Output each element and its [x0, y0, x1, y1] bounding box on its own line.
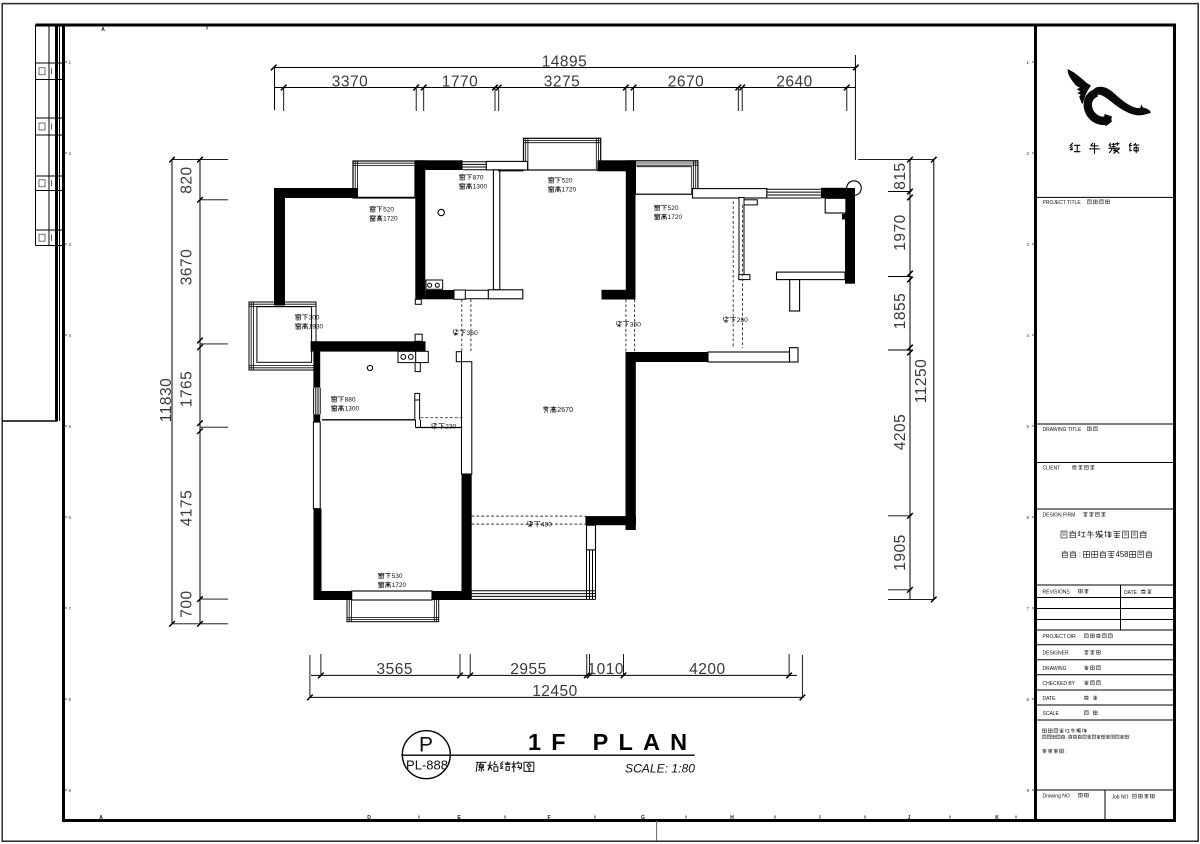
svg-text:PROJECT DIR: PROJECT DIR — [1043, 634, 1077, 640]
svg-text:230: 230 — [445, 424, 456, 431]
svg-text:A: A — [99, 815, 103, 821]
svg-text:REVISIONS: REVISIONS — [1043, 589, 1071, 595]
svg-text:H: H — [730, 815, 734, 821]
svg-text:520: 520 — [562, 178, 573, 185]
svg-text:4205: 4205 — [892, 414, 909, 450]
svg-text:1905: 1905 — [892, 534, 909, 570]
svg-text:K: K — [995, 815, 999, 821]
svg-text:4175: 4175 — [179, 490, 196, 526]
svg-text:3275: 3275 — [544, 74, 580, 91]
svg-text:360: 360 — [467, 330, 478, 337]
svg-text:2670: 2670 — [557, 406, 573, 414]
svg-text:SCALE: 1:80: SCALE: 1:80 — [625, 761, 695, 775]
svg-text:1720: 1720 — [392, 582, 407, 589]
svg-text:DESIGN FIRM: DESIGN FIRM — [1043, 513, 1076, 519]
svg-text:458: 458 — [1116, 550, 1129, 559]
svg-text:1300: 1300 — [345, 406, 360, 413]
svg-text:1720: 1720 — [562, 187, 577, 194]
svg-text:Drawing NO: Drawing NO — [1043, 793, 1070, 799]
svg-text:1770: 1770 — [442, 74, 478, 91]
svg-text:DESIGNER: DESIGNER — [1043, 651, 1070, 657]
svg-text::: : — [1079, 550, 1081, 559]
svg-text:CLIENT: CLIENT — [1043, 466, 1061, 472]
svg-text:,: , — [1066, 734, 1067, 739]
svg-text:1765: 1765 — [179, 371, 196, 407]
svg-text:J: J — [908, 815, 911, 821]
svg-text:4200: 4200 — [689, 661, 725, 678]
svg-text:2955: 2955 — [510, 661, 546, 678]
svg-text:1F PLAN: 1F PLAN — [528, 729, 697, 755]
svg-text:12450: 12450 — [532, 683, 578, 700]
svg-text:3670: 3670 — [179, 249, 196, 285]
svg-text:530: 530 — [392, 573, 403, 580]
svg-text:3370: 3370 — [332, 74, 368, 91]
svg-text:DRAWING TITLE: DRAWING TITLE — [1043, 427, 1083, 433]
svg-text:F: F — [547, 815, 550, 821]
svg-text:2640: 2640 — [776, 74, 812, 91]
svg-text:11250: 11250 — [913, 359, 930, 403]
svg-text:CHECKED BY: CHECKED BY — [1043, 681, 1076, 687]
svg-text:Job NO: Job NO — [1112, 794, 1129, 800]
svg-text:14895: 14895 — [542, 54, 588, 71]
svg-text:DATE: DATE — [1124, 590, 1138, 596]
svg-text:1930: 1930 — [309, 324, 324, 331]
svg-text:880: 880 — [345, 397, 356, 404]
svg-text:1010: 1010 — [588, 661, 624, 678]
svg-text:430: 430 — [541, 522, 552, 529]
svg-text:SCALE: SCALE — [1043, 711, 1060, 717]
svg-text:PROJECT TITLE: PROJECT TITLE — [1043, 200, 1082, 206]
svg-text::: : — [1130, 734, 1131, 739]
svg-text:1720: 1720 — [383, 216, 398, 223]
svg-text:870: 870 — [473, 175, 484, 182]
svg-text:1855: 1855 — [892, 293, 909, 329]
svg-text:815: 815 — [892, 162, 909, 189]
svg-text:360: 360 — [630, 322, 641, 329]
svg-text:1300: 1300 — [473, 184, 488, 191]
svg-text:11830: 11830 — [158, 378, 175, 422]
svg-text:DRAWING: DRAWING — [1043, 666, 1067, 672]
svg-text:260: 260 — [737, 317, 748, 324]
svg-text:PL-888: PL-888 — [406, 758, 448, 773]
svg-text:DATE: DATE — [1043, 696, 1057, 702]
svg-text:3565: 3565 — [376, 661, 412, 678]
svg-text:300: 300 — [309, 315, 320, 322]
svg-text:P: P — [419, 734, 433, 757]
svg-text:520: 520 — [383, 207, 394, 214]
svg-text:G: G — [641, 815, 645, 821]
svg-text:D: D — [367, 815, 371, 821]
svg-text:2670: 2670 — [668, 74, 704, 91]
svg-text:820: 820 — [179, 166, 196, 193]
svg-text:1720: 1720 — [668, 214, 683, 221]
svg-text:1970: 1970 — [892, 214, 909, 250]
svg-text:520: 520 — [668, 205, 679, 212]
svg-text:A: A — [101, 27, 105, 33]
svg-text:700: 700 — [179, 590, 196, 617]
svg-text::: : — [1066, 748, 1067, 753]
